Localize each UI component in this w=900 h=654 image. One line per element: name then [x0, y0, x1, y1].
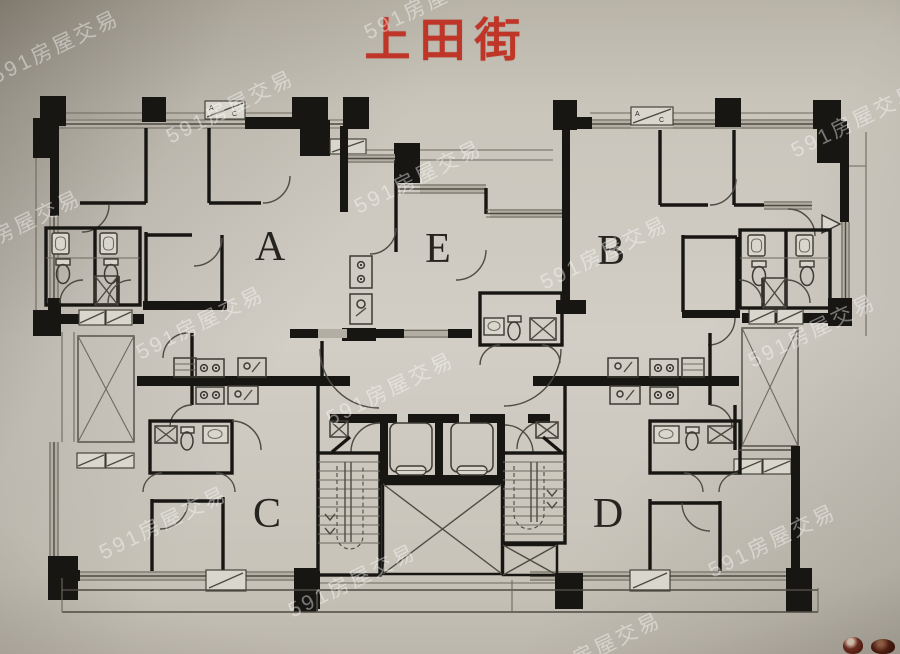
unit-b-bathrooms: [739, 230, 830, 308]
sink-icon: [100, 233, 117, 254]
fridge-icon: [682, 358, 704, 377]
unit-label-a: A: [255, 226, 285, 268]
sink-icon: [52, 233, 69, 254]
structural-columns-top: [33, 96, 847, 183]
window-tag-letter: A: [635, 111, 640, 118]
light-wells: [62, 328, 798, 474]
unit-label-e: E: [425, 228, 451, 270]
floorplan-photo: A C A C: [0, 0, 900, 654]
fingertip: [871, 639, 895, 654]
elevator-car-icon: [451, 423, 493, 472]
floor-plan-drawing: A C A C: [0, 0, 900, 654]
sink-icon: [796, 235, 813, 256]
stair-left: [318, 453, 380, 575]
sink-icon: [484, 318, 504, 335]
unit-label-b: B: [597, 230, 625, 272]
street-title: 上田街: [365, 4, 530, 70]
stair-right: [503, 453, 565, 543]
window-tag-letter: A: [209, 105, 214, 112]
window-tag-letter: C: [659, 117, 664, 124]
sink-icon: [610, 386, 640, 404]
sink-icon: [654, 426, 679, 443]
unit-label-c: C: [253, 493, 281, 535]
unit-e-bathroom: [480, 293, 562, 365]
sink-icon: [748, 235, 765, 256]
sink-icon: [228, 386, 258, 404]
window-tag-letter: C: [232, 111, 237, 118]
unit-label-d: D: [593, 493, 623, 535]
elevators: [380, 414, 505, 485]
fingertip: [843, 637, 863, 654]
toilet-icon: [508, 316, 521, 322]
stove-icon: [350, 256, 372, 288]
sink-icon: [350, 294, 372, 324]
sink-icon: [238, 358, 266, 377]
unit-a-bathrooms: [46, 228, 140, 305]
elevator-car-icon: [390, 423, 432, 472]
sink-icon: [608, 358, 638, 377]
sink-icon: [203, 426, 228, 443]
